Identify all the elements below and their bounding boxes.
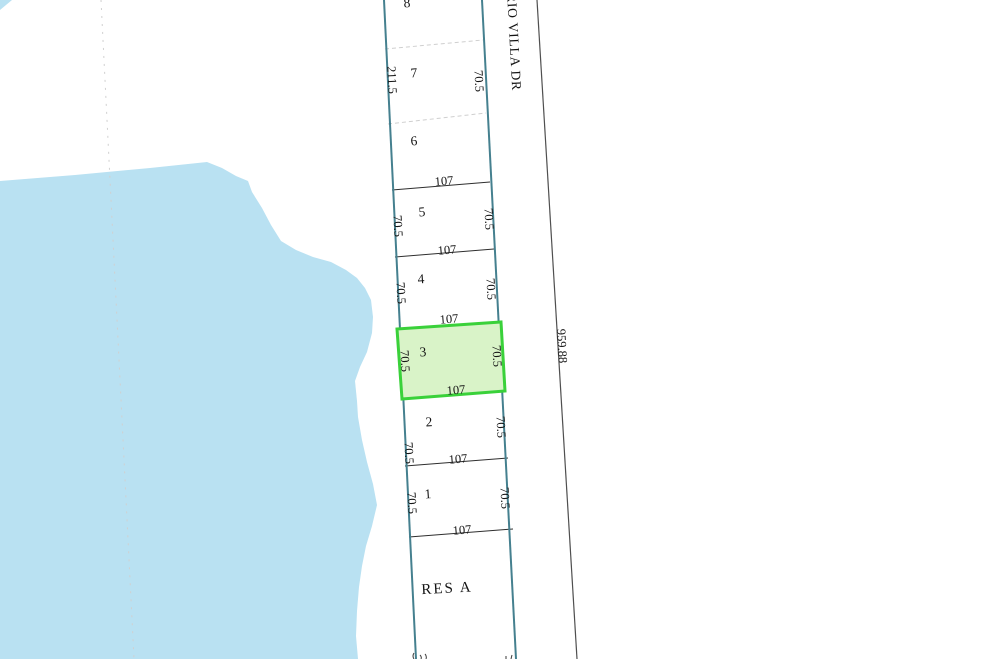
dim-front-lot3: 107 bbox=[446, 382, 466, 397]
dim-east-lot1: 70.5 bbox=[497, 487, 512, 510]
dim-west-lot4: 70.5 bbox=[393, 282, 408, 305]
dim-west-lot2: 70.5 bbox=[401, 442, 416, 465]
dim-west-lot5: 70.5 bbox=[390, 215, 405, 238]
dim-front-lot6: 107 bbox=[434, 173, 454, 188]
dim-front-lot4: 107 bbox=[439, 311, 459, 326]
parcel-lot-7[interactable] bbox=[385, 40, 486, 124]
lot-6-label: 6 bbox=[410, 133, 418, 148]
lot-5-label: 5 bbox=[418, 204, 426, 219]
lot-3-label: 3 bbox=[419, 344, 427, 359]
dim-front-lot1: 107 bbox=[452, 522, 472, 537]
lot-4-label: 4 bbox=[417, 271, 425, 286]
parcel-map-viewport: 8 7 6 5 4 3 2 1 RES A 107 107 107 107 10… bbox=[0, 0, 991, 659]
lot-2-label: 2 bbox=[425, 414, 433, 429]
dim-east-lot3: 70.5 bbox=[489, 345, 504, 368]
dim-west-boundary: 211.5 bbox=[384, 66, 399, 94]
lot-1-label: 1 bbox=[424, 486, 432, 501]
dim-west-lot3: 70.5 bbox=[397, 350, 412, 373]
dim-road-frontage: 959.88 bbox=[554, 328, 570, 363]
dim-east-lot2: 70.5 bbox=[493, 416, 508, 439]
dim-front-lot2: 107 bbox=[448, 451, 468, 466]
lot-8-label: 8 bbox=[403, 0, 411, 11]
res-a-label: RES A bbox=[421, 579, 473, 598]
dim-east-lot7: 70.5 bbox=[471, 70, 486, 93]
dim-east-lot5: 70.5 bbox=[481, 208, 496, 231]
dim-west-lot1: 70.5 bbox=[404, 492, 419, 515]
lot-7-label: 7 bbox=[410, 65, 418, 80]
dim-east-lot4: 70.5 bbox=[483, 278, 498, 301]
map-canvas[interactable]: 8 7 6 5 4 3 2 1 RES A 107 107 107 107 10… bbox=[0, 0, 991, 659]
dim-front-lot5: 107 bbox=[437, 242, 457, 257]
